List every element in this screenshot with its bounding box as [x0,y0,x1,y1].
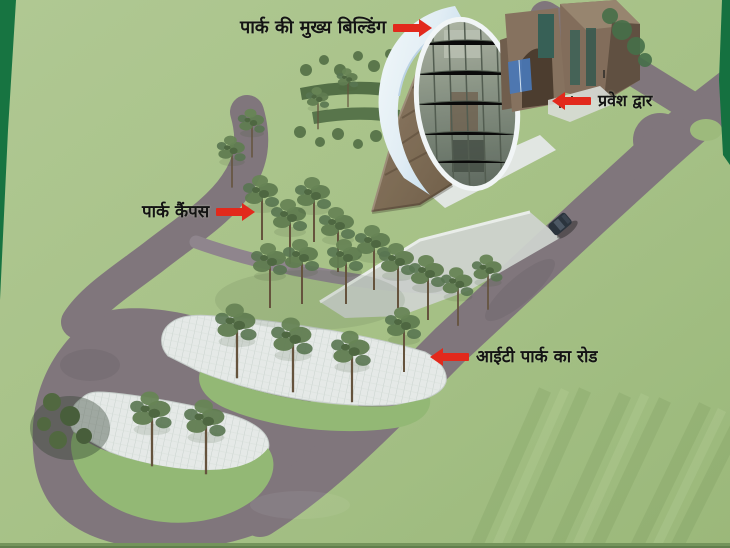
site-plan: पार्क की मुख्य बिल्डिंग प्रवेश द्वार पार… [0,0,730,548]
annotation-park-campus-label: पार्क कैंपस [142,203,209,222]
annotation-main-building: पार्क की मुख्य बिल्डिंग [240,18,420,38]
arrow-right-icon [393,24,420,32]
annotation-entrance-gate: प्रवेश द्वार [564,92,652,110]
arrow-right-icon [216,208,243,216]
annotation-park-campus: पार्क कैंपस [142,203,243,222]
annotation-it-park-road-label: आईटी पार्क का रोड [476,348,597,367]
annotation-entrance-gate-label: प्रवेश द्वार [598,92,652,110]
arrow-left-icon [564,97,591,105]
annotation-it-park-road: आईटी पार्क का रोड [442,348,597,367]
annotation-main-building-label: पार्क की मुख्य बिल्डिंग [240,18,386,38]
site-plan-illustration [0,0,730,548]
arrow-left-icon [442,353,469,361]
photo-haze [0,0,730,548]
